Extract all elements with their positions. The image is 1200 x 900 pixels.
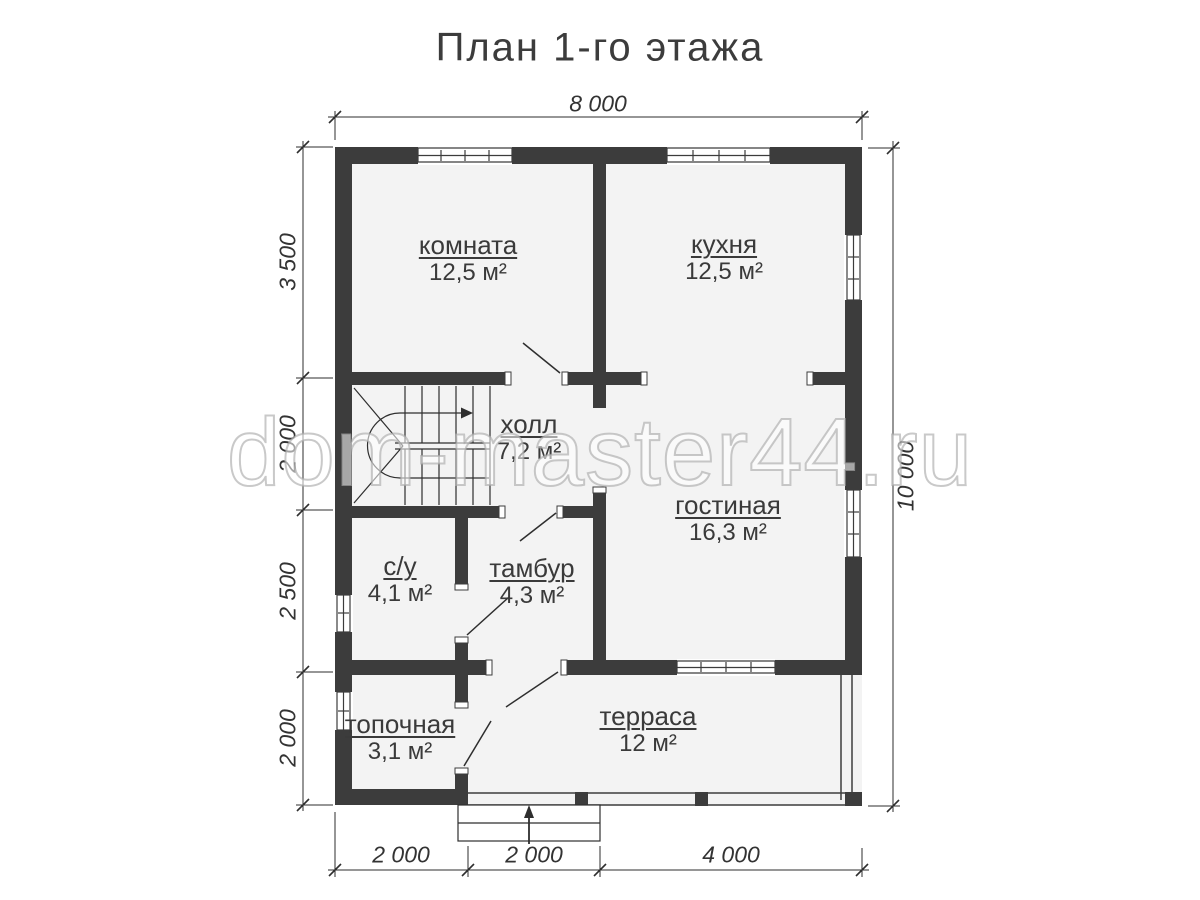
room-area: 4,1 м² bbox=[368, 580, 433, 607]
wall-top bbox=[335, 147, 862, 164]
room-name: холл bbox=[497, 411, 562, 438]
dim-left-2000a: 2 000 bbox=[275, 415, 302, 473]
terrace-corner-post bbox=[845, 792, 862, 806]
wall-topochnaya-terrasa-lower bbox=[455, 774, 468, 789]
room-name: тамбур bbox=[489, 555, 574, 582]
dim-left-3500: 3 500 bbox=[275, 233, 302, 291]
dimension-left bbox=[296, 141, 333, 811]
dim-left-2000b: 2 000 bbox=[275, 709, 302, 767]
window-komnata bbox=[418, 146, 512, 165]
wall-terrace-top-a bbox=[335, 660, 486, 675]
wall-stairs-bottom bbox=[352, 506, 499, 518]
room-label-komnata: комната 12,5 м² bbox=[419, 232, 517, 286]
window-terrasa bbox=[677, 659, 775, 676]
room-area: 12,5 м² bbox=[685, 258, 763, 285]
room-area: 12 м² bbox=[600, 730, 697, 757]
wall-tambur-gostinaya bbox=[593, 493, 606, 663]
wall-topochnaya-terrasa-upper bbox=[455, 675, 468, 702]
page-title: План 1-го этажа bbox=[436, 26, 765, 71]
wall-terrace-top-c bbox=[775, 660, 862, 675]
room-area: 12,5 м² bbox=[419, 259, 517, 286]
room-name: комната bbox=[419, 232, 517, 259]
room-label-su: с/у 4,1 м² bbox=[368, 553, 433, 607]
wall-su-tambur-upper bbox=[455, 512, 468, 584]
floor-plan-drawing bbox=[0, 0, 1200, 900]
room-area: 7,2 м² bbox=[497, 438, 562, 465]
wall-komnata-bottom bbox=[352, 372, 505, 385]
room-label-gostinaya: гостиная 16,3 м² bbox=[675, 492, 781, 546]
room-label-tambur: тамбур 4,3 м² bbox=[489, 555, 574, 609]
wall-right bbox=[845, 147, 862, 675]
room-name: гостиная bbox=[675, 492, 781, 519]
floor-plan-page: План 1-го этажа комната 12,5 м² кухня 12… bbox=[0, 0, 1200, 900]
wall-komnata-kuhnya bbox=[593, 164, 606, 408]
room-label-holl: холл 7,2 м² bbox=[497, 411, 562, 465]
wall-holl-top-stub bbox=[568, 372, 641, 385]
wall-su-tambur-lower bbox=[455, 643, 468, 660]
wall-tambur-top-stub bbox=[563, 506, 593, 518]
terrace-post bbox=[695, 792, 708, 806]
dim-bottom-4000: 4 000 bbox=[702, 842, 760, 869]
entrance-steps bbox=[458, 805, 600, 844]
dim-top-8000: 8 000 bbox=[569, 91, 627, 118]
room-name: с/у bbox=[368, 553, 433, 580]
dim-right-10000: 10 000 bbox=[893, 441, 920, 511]
room-label-kuhnya: кухня 12,5 м² bbox=[685, 231, 763, 285]
dim-bottom-2000b: 2 000 bbox=[505, 842, 563, 869]
room-name: терраса bbox=[600, 703, 697, 730]
window-su bbox=[334, 595, 353, 632]
window-kuhnya-right bbox=[844, 235, 863, 300]
room-name: топочная bbox=[345, 711, 456, 738]
room-name: кухня bbox=[685, 231, 763, 258]
room-area: 16,3 м² bbox=[675, 519, 781, 546]
wall-bottom-left bbox=[335, 789, 468, 805]
room-label-topochnaya: топочная 3,1 м² bbox=[345, 711, 456, 765]
dim-bottom-2000a: 2 000 bbox=[372, 842, 430, 869]
terrace-post bbox=[575, 792, 588, 806]
wall-terrace-top-b bbox=[567, 660, 677, 675]
room-area: 4,3 м² bbox=[489, 582, 574, 609]
window-kuhnya-top bbox=[667, 146, 770, 165]
room-area: 3,1 м² bbox=[345, 738, 456, 765]
dim-left-2500: 2 500 bbox=[275, 562, 302, 620]
room-label-terrasa: терраса 12 м² bbox=[600, 703, 697, 757]
window-gostinaya bbox=[844, 490, 863, 557]
